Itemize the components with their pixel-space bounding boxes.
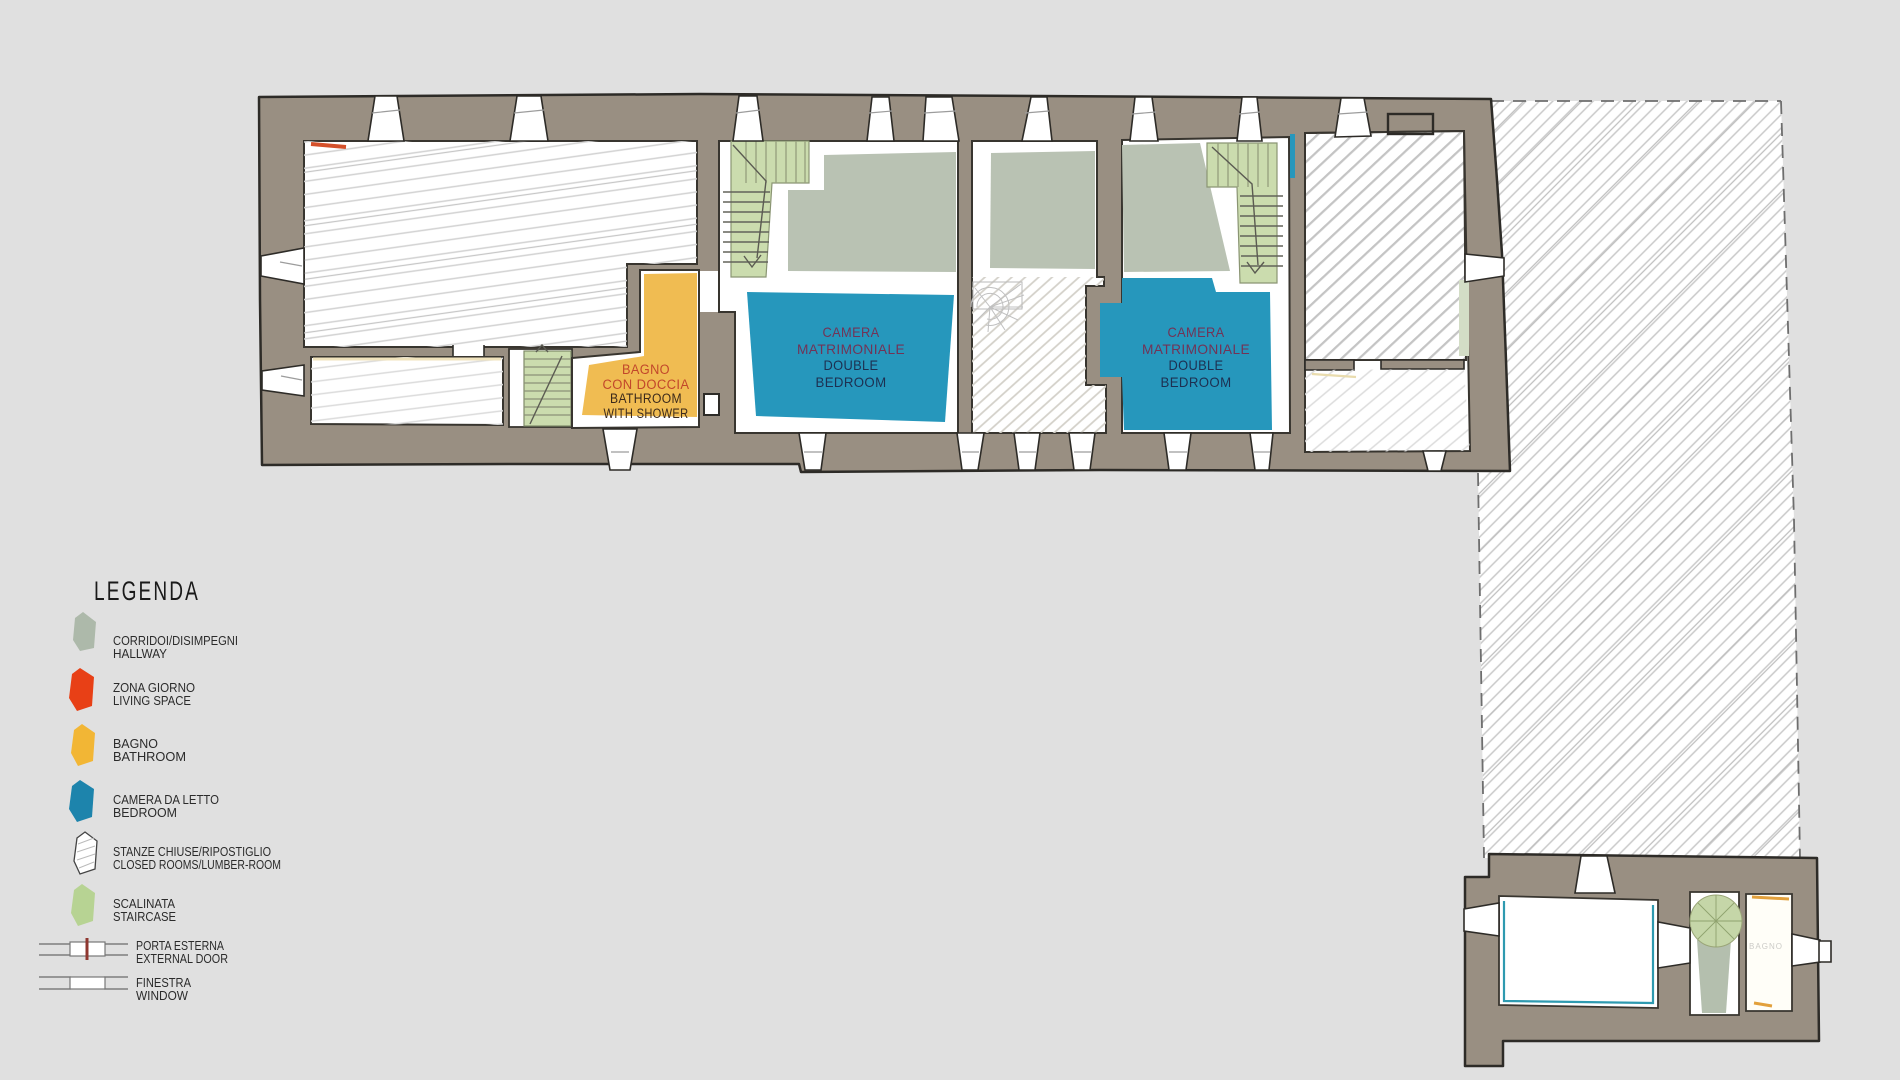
- svg-text:BEDROOM: BEDROOM: [1161, 374, 1232, 390]
- svg-text:LIVING SPACE: LIVING SPACE: [113, 693, 191, 708]
- svg-text:BAGNO: BAGNO: [1749, 942, 1783, 951]
- svg-text:MATRIMONIALE: MATRIMONIALE: [1142, 341, 1250, 357]
- svg-text:CAMERA: CAMERA: [823, 324, 880, 340]
- svg-text:BEDROOM: BEDROOM: [816, 374, 887, 390]
- svg-text:HALLWAY: HALLWAY: [113, 646, 167, 661]
- svg-text:DOUBLE: DOUBLE: [1169, 357, 1224, 373]
- svg-text:BAGNO: BAGNO: [622, 362, 670, 377]
- svg-text:BATHROOM: BATHROOM: [610, 391, 682, 406]
- svg-text:BEDROOM: BEDROOM: [113, 805, 177, 820]
- svg-text:LEGENDA: LEGENDA: [94, 576, 200, 606]
- svg-text:WINDOW: WINDOW: [136, 988, 189, 1003]
- svg-text:CAMERA: CAMERA: [1168, 324, 1225, 340]
- svg-text:BATHROOM: BATHROOM: [113, 749, 186, 764]
- svg-text:MATRIMONIALE: MATRIMONIALE: [797, 341, 905, 357]
- svg-text:CON DOCCIA: CON DOCCIA: [603, 377, 690, 392]
- svg-text:WITH SHOWER: WITH SHOWER: [604, 406, 689, 421]
- svg-text:CLOSED ROOMS/LUMBER-ROOM: CLOSED ROOMS/LUMBER-ROOM: [113, 857, 281, 872]
- svg-text:EXTERNAL DOOR: EXTERNAL DOOR: [136, 951, 228, 966]
- svg-text:DOUBLE: DOUBLE: [824, 357, 879, 373]
- svg-text:STAIRCASE: STAIRCASE: [113, 909, 176, 924]
